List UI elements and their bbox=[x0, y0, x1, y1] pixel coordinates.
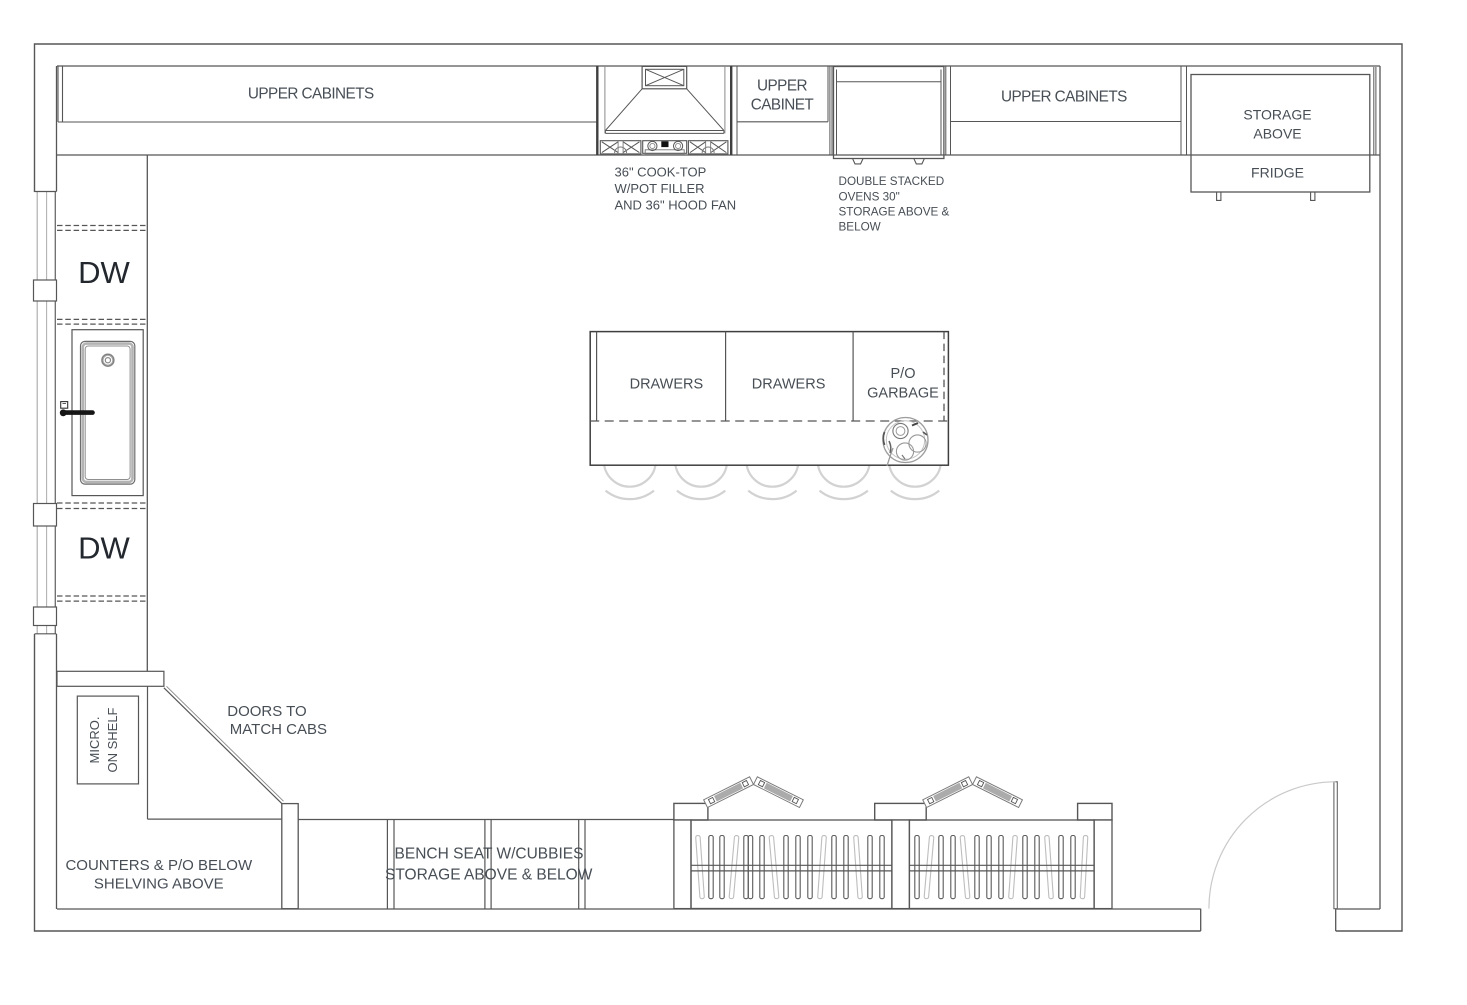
svg-text:COUNTERS & P/O BELOW: COUNTERS & P/O BELOW bbox=[65, 857, 253, 874]
svg-text:DRAWERS: DRAWERS bbox=[630, 376, 704, 392]
svg-text:AND 36" HOOD FAN: AND 36" HOOD FAN bbox=[615, 198, 737, 213]
svg-text:DW: DW bbox=[78, 531, 130, 566]
svg-text:STORAGE ABOVE & BELOW: STORAGE ABOVE & BELOW bbox=[385, 867, 593, 884]
svg-text:W/POT FILLER: W/POT FILLER bbox=[615, 181, 705, 196]
svg-text:P/O: P/O bbox=[891, 366, 916, 382]
svg-text:UPPER CABINETS: UPPER CABINETS bbox=[248, 86, 374, 103]
svg-text:BENCH SEAT W/CUBBIES: BENCH SEAT W/CUBBIES bbox=[395, 846, 584, 863]
svg-text:GARBAGE: GARBAGE bbox=[867, 386, 939, 402]
svg-text:DW: DW bbox=[78, 255, 130, 290]
svg-text:SHELVING ABOVE: SHELVING ABOVE bbox=[94, 876, 224, 893]
svg-text:ABOVE: ABOVE bbox=[1253, 125, 1301, 141]
svg-text:MATCH CABS: MATCH CABS bbox=[230, 721, 327, 738]
svg-text:BELOW: BELOW bbox=[839, 221, 881, 234]
svg-text:DRAWERS: DRAWERS bbox=[752, 376, 826, 392]
svg-text:STORAGE: STORAGE bbox=[1243, 107, 1311, 123]
svg-text:ON SHELF: ON SHELF bbox=[105, 707, 120, 772]
svg-text:OVENS 30": OVENS 30" bbox=[839, 190, 900, 203]
svg-text:MICRO.: MICRO. bbox=[87, 717, 102, 764]
svg-text:CABINET: CABINET bbox=[751, 97, 814, 114]
svg-text:UPPER CABINETS: UPPER CABINETS bbox=[1001, 89, 1127, 106]
svg-text:DOORS TO: DOORS TO bbox=[227, 703, 306, 720]
svg-text:STORAGE ABOVE &: STORAGE ABOVE & bbox=[839, 205, 950, 218]
svg-text:UPPER: UPPER bbox=[757, 78, 807, 95]
svg-text:DOUBLE STACKED: DOUBLE STACKED bbox=[839, 175, 945, 188]
svg-text:FRIDGE: FRIDGE bbox=[1251, 164, 1304, 180]
svg-text:36" COOK-TOP: 36" COOK-TOP bbox=[615, 165, 707, 180]
